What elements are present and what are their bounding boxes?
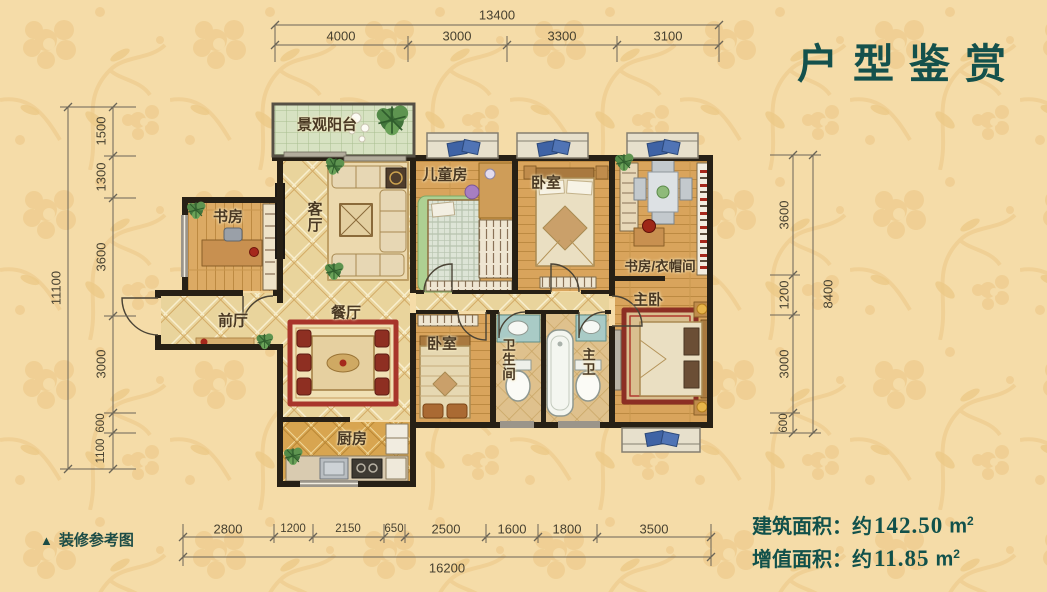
building-area-unit: m2: [949, 514, 973, 539]
bay-window-bedroom-top: [517, 133, 588, 158]
kids-shelf: [426, 281, 512, 291]
dim-bottom-seg-6: 1800: [553, 522, 582, 537]
room-label-master-bath: 主卫: [577, 348, 597, 377]
kids-wardrobe: [479, 220, 513, 278]
dim-bottom-seg-4: 2500: [432, 522, 461, 537]
legend-label: 装修参考图: [59, 532, 134, 549]
room-label-living: 客厅: [304, 201, 325, 233]
dim-right-seg-0: 3600: [777, 201, 792, 230]
room-label-bedroom-bottom: 卧室: [427, 333, 457, 354]
building-area-label: 建筑面积：约: [752, 510, 872, 539]
dim-left-seg-3: 3000: [94, 350, 109, 379]
floor-plan-page: 户型鉴赏 景观阳台 客厅 书房 前厅 餐厅 厨房 儿童房 卧室 书房/衣帽间 主…: [0, 0, 1047, 592]
dim-left-seg-0: 1500: [94, 117, 109, 146]
building-area-line: 建筑面积：约 142.50 m2: [752, 510, 974, 539]
room-label-kids: 儿童房: [422, 164, 467, 185]
building-area-value: 142.50: [874, 513, 943, 539]
dining-set: [290, 322, 396, 404]
room-label-cloak: 书房/衣帽间: [624, 255, 695, 275]
bay-window-master: [622, 428, 700, 452]
dim-bottom-seg-2: 2150: [335, 523, 361, 535]
master-bed: [612, 302, 710, 415]
dim-right-seg-2: 3000: [777, 350, 792, 379]
value-area-line: 增值面积：约 11.85 m2: [752, 543, 960, 572]
value-area-unit: m2: [935, 547, 959, 572]
room-label-study: 书房: [213, 206, 243, 227]
corridor-floor: [416, 292, 609, 311]
dim-top-seg-1: 3000: [443, 29, 472, 44]
dim-right-total: 8400: [821, 280, 836, 309]
dim-bottom-seg-5: 1600: [498, 522, 527, 537]
bay-window-kids: [427, 133, 498, 158]
dim-top-total: 13400: [479, 8, 515, 23]
value-area-label: 增值面积：约: [752, 543, 872, 572]
room-label-bedroom-top: 卧室: [531, 172, 561, 193]
room-label-bath: 卫生间: [497, 338, 517, 382]
balcony-sliding-door: [284, 152, 346, 157]
dim-bottom-seg-3: 650: [384, 523, 403, 535]
dim-right-seg-1: 1200: [777, 281, 792, 310]
room-label-master: 主卧: [633, 289, 663, 310]
dim-top-seg-0: 4000: [327, 29, 356, 44]
dim-left-seg-1: 1300: [94, 163, 109, 192]
room-label-foyer: 前厅: [218, 310, 248, 331]
dim-bottom-seg-1: 1200: [280, 523, 306, 535]
dim-bottom-seg-0: 2800: [214, 522, 243, 537]
dim-left-total: 11100: [49, 271, 64, 305]
kids-chair: [465, 185, 479, 199]
bath-window: [500, 421, 534, 428]
dim-top-seg-2: 3300: [548, 29, 577, 44]
dim-bottom-seg-7: 3500: [640, 522, 669, 537]
bay-window-cloak: [627, 133, 698, 158]
dim-right-seg-3: 600: [778, 413, 790, 432]
page-title: 户型鉴赏: [797, 30, 1047, 90]
value-area-value: 11.85: [874, 546, 929, 572]
legend: ▲装修参考图: [40, 529, 134, 550]
dim-bottom-total: 16200: [429, 561, 465, 576]
dim-left-seg-5: 1100: [95, 439, 107, 464]
master-bath-window: [558, 421, 600, 428]
bedroom-top-dresser: [540, 277, 596, 288]
fridge: [386, 424, 408, 454]
room-label-kitchen: 厨房: [337, 428, 367, 449]
room-label-balcony: 景观阳台: [297, 114, 357, 135]
dim-left-seg-4: 600: [95, 413, 107, 432]
living-sofa: [328, 162, 408, 280]
dim-top-seg-3: 3100: [654, 29, 683, 44]
room-label-dining: 餐厅: [331, 302, 361, 323]
dim-left-seg-2: 3600: [94, 243, 109, 272]
triangle-icon: ▲: [40, 533, 53, 548]
